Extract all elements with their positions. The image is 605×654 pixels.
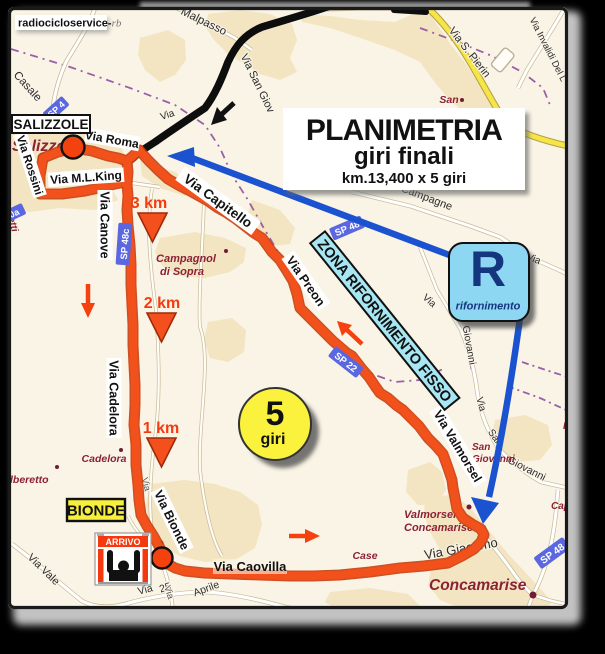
- svg-text:giri finali: giri finali: [354, 143, 454, 170]
- svg-text:Via Canove: Via Canove: [98, 191, 112, 258]
- svg-text:San: San: [472, 442, 490, 453]
- svg-text:ARRIVO: ARRIVO: [105, 537, 140, 547]
- svg-text:Valmorsel-: Valmorsel-: [404, 509, 460, 521]
- svg-text:San: San: [439, 94, 458, 106]
- svg-text:SP 48c: SP 48c: [119, 228, 132, 260]
- svg-text:Via Cadelora: Via Cadelora: [107, 360, 121, 437]
- svg-text:SALIZZOLE: SALIZZOLE: [14, 117, 89, 132]
- svg-text:km.13,400 x 5 giri: km.13,400 x 5 giri: [342, 170, 466, 187]
- svg-text:5: 5: [266, 395, 285, 433]
- svg-text:BIONDE: BIONDE: [67, 503, 125, 520]
- svg-text:rifornimento: rifornimento: [456, 301, 521, 313]
- svg-text:di Sopra: di Sopra: [160, 266, 204, 278]
- svg-text:2 km: 2 km: [144, 295, 180, 312]
- svg-text:radiocicloservice-rb: radiocicloservice-rb: [18, 18, 122, 30]
- svg-text:lberetto: lberetto: [10, 474, 49, 486]
- svg-text:Case: Case: [352, 550, 377, 562]
- svg-text:Concamarise: Concamarise: [429, 577, 527, 594]
- svg-text:3 km: 3 km: [131, 195, 167, 212]
- svg-text:Via Caovilla: Via Caovilla: [214, 559, 288, 574]
- svg-text:1 km: 1 km: [143, 420, 179, 437]
- svg-text:Campagnol: Campagnol: [156, 253, 217, 265]
- svg-text:giri: giri: [261, 431, 286, 448]
- svg-text:Cadelora: Cadelora: [82, 453, 127, 465]
- svg-text:R: R: [470, 241, 506, 297]
